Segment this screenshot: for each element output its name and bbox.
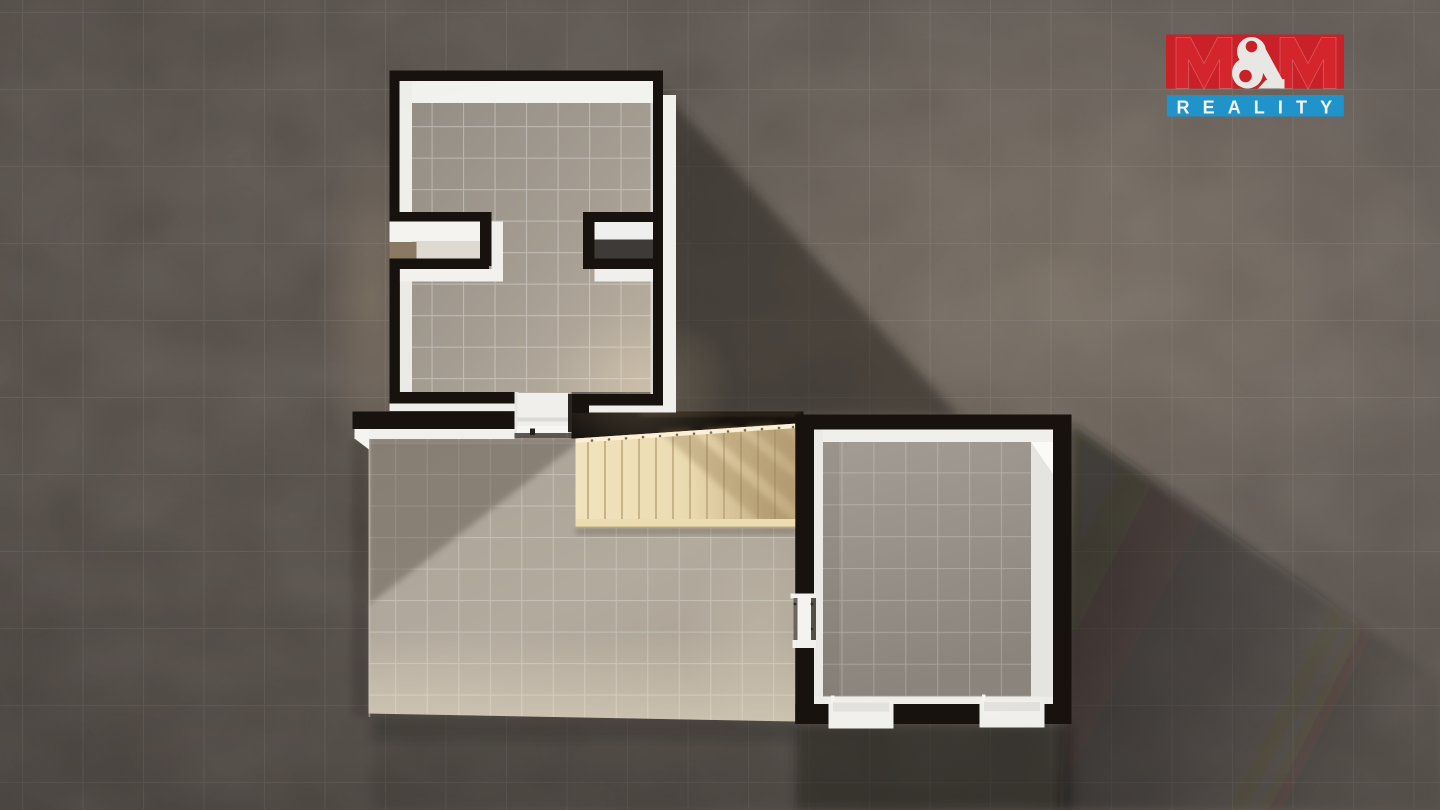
svg-text:REALITY: REALITY <box>1177 98 1346 118</box>
